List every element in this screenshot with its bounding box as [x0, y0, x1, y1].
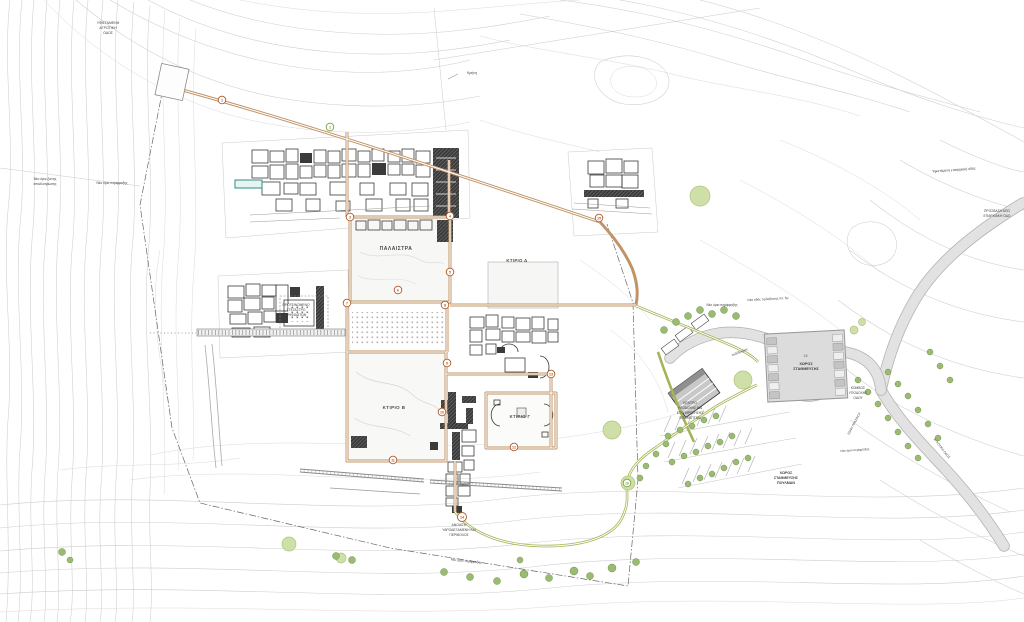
svg-text:ΕΠΙΣΚΕΠΤΩΝ: ΕΠΙΣΚΕΠΤΩΝ	[679, 416, 701, 420]
route-node: 1	[218, 96, 226, 104]
label-building-d: ΚΤΙΡΙΟ Δ	[506, 258, 527, 263]
ruins-northeast-complex	[572, 159, 652, 214]
label-fence-left: Νέο όριο περίφραξης	[97, 181, 128, 185]
ruins-west-cluster	[150, 284, 345, 337]
label-fence-right: Νέο όριο περίφραξης	[840, 447, 870, 453]
ruins-central	[470, 315, 558, 378]
svg-text:ΟΔΟΥ: ΟΔΟΥ	[853, 396, 863, 400]
ancient-pool	[235, 180, 262, 188]
svg-text:ΕΞΥΠΗΡΕΤΗΣΗΣ: ΕΞΥΠΗΡΕΤΗΣΗΣ	[677, 411, 704, 415]
svg-text:8: 8	[444, 303, 446, 307]
route-node: 8	[441, 301, 449, 309]
svg-text:13: 13	[549, 372, 553, 376]
svg-text:3: 3	[349, 215, 351, 219]
label-building-b: ΚΤΙΡΙΟ Β	[383, 405, 406, 410]
label-fence-bottom: Νέο όριο περίφραξης	[450, 557, 482, 564]
route-node: 7	[343, 299, 351, 307]
label-parking-type: Ι.Χ.	[804, 354, 809, 358]
svg-text:ΥΠΟΔΟΧΗΣ ΚΑΙ: ΥΠΟΔΟΧΗΣ ΚΑΙ	[678, 406, 703, 410]
route-node: 13	[547, 370, 555, 378]
label-palaestra: ΠΑΛΑΙΣΤΡΑ	[380, 246, 413, 252]
label-new-access: Νέα οδός πρόσβασης πλ. 5μ	[747, 296, 788, 302]
label-topleft-road: ΥΦΙΣΤΑΜΕΝΗ	[97, 21, 120, 25]
svg-text:ΕΠΑΡΧΙΑΚΗ ΟΔΟ: ΕΠΑΡΧΙΑΚΗ ΟΔΟ	[984, 214, 1011, 218]
label-green-zone: ΖΩΝΗ ΠΡΑΣΙΝΟΥ	[846, 412, 861, 436]
svg-text:6: 6	[397, 288, 399, 292]
svg-text:12: 12	[512, 445, 516, 449]
site-plan-svg: 1 2 3 4 5 6 7 8 9 10 11 12 13 14 15 16 Υ…	[0, 0, 1024, 622]
svg-text:14: 14	[460, 516, 464, 520]
label-mosaics-vertical: ΨΗΦΙΔΩΤΑ	[318, 301, 322, 318]
svg-text:1: 1	[221, 98, 223, 102]
label-expropriation: Νέο όριο ζώνης	[34, 177, 57, 181]
route-node: 2	[326, 123, 334, 131]
label-fence-mid: Νέο όριο περίφραξης	[707, 303, 738, 307]
label-south-area: ΑΝΟΙΧΤΗ	[452, 523, 467, 527]
svg-text:5: 5	[449, 270, 451, 274]
route-node: 11	[389, 456, 397, 464]
svg-text:11: 11	[391, 458, 395, 462]
label-fountain: Κρήνη	[467, 71, 477, 75]
svg-text:4: 4	[449, 214, 451, 218]
svg-text:ΣΤΕΓΑΣΤΡΟ: ΣΤΕΓΑΣΤΡΟ	[287, 308, 306, 312]
label-mosaics-shelter: ΠΡΟΤΕΙΝΟΜΕΝΟ	[282, 303, 310, 307]
svg-text:ΨΗΦΙΔΩΤΩΝ: ΨΗΦΙΔΩΤΩΝ	[286, 313, 307, 317]
contour-lines	[0, 0, 1024, 622]
label-building-c: ΚΤΙΡΙΟ Γ	[510, 414, 531, 419]
svg-text:ΥΔΡΟΔΕΞΑΜΕΝΗ ΚΑΙ: ΥΔΡΟΔΕΞΑΜΕΝΗ ΚΑΙ	[442, 528, 476, 532]
svg-text:16: 16	[625, 481, 629, 485]
gatehouse-building	[155, 63, 189, 100]
svg-text:ΥΠΟΔΟΧΗΣ: ΥΠΟΔΟΧΗΣ	[849, 391, 867, 395]
route-node: 5	[446, 268, 454, 276]
route-node: 4	[446, 212, 454, 220]
svg-text:ΑΓΡΟΤΙΚΗ: ΑΓΡΟΤΙΚΗ	[99, 26, 117, 30]
label-bus-parking: ΧΩΡΟΣ	[780, 471, 793, 475]
svg-text:9: 9	[446, 361, 448, 365]
svg-text:15: 15	[597, 216, 601, 220]
route-node: 15	[595, 214, 603, 222]
route-node: 3	[346, 213, 354, 221]
label-komvos: ΚΟΜΒΟΣ	[851, 386, 865, 390]
label-access-road: ΠΡΟΣΒΑΣΗ ΑΠΟ	[984, 209, 1010, 213]
svg-text:2: 2	[329, 125, 331, 129]
label-parking: ΧΩΡΟΣ	[799, 362, 813, 366]
route-node: 9	[443, 359, 451, 367]
svg-text:ΠΟΥΛΜΑΝ: ΠΟΥΛΜΑΝ	[777, 481, 795, 485]
svg-text:ΠΕΡΙΒΟΛΟΣ: ΠΕΡΙΒΟΛΟΣ	[449, 533, 468, 537]
svg-text:απαλλοτρίωσης: απαλλοτρίωσης	[33, 182, 56, 186]
route-node: 12	[510, 443, 518, 451]
route-node: 6	[394, 286, 402, 294]
car-parking-lot	[764, 330, 847, 402]
label-reception: ΚΕΝΤΡΟ	[683, 401, 697, 405]
svg-text:10: 10	[440, 410, 444, 414]
svg-text:ΣΤΑΘΜΕΥΣΗΣ: ΣΤΑΘΜΕΥΣΗΣ	[774, 476, 799, 480]
route-node: 14	[458, 513, 467, 522]
svg-text:ΟΔΟΣ: ΟΔΟΣ	[103, 31, 114, 35]
svg-text:7: 7	[346, 301, 348, 305]
route-node: 10	[438, 408, 446, 416]
label-existing-road: Υφιστάμενη επαρχιακή οδός	[932, 166, 976, 173]
site-plan-drawing: 1 2 3 4 5 6 7 8 9 10 11 12 13 14 15 16 Υ…	[0, 0, 1024, 622]
route-node: 16	[623, 479, 631, 487]
svg-text:ΣΤΑΘΜΕΥΣΗΣ: ΣΤΑΘΜΕΥΣΗΣ	[793, 367, 819, 371]
